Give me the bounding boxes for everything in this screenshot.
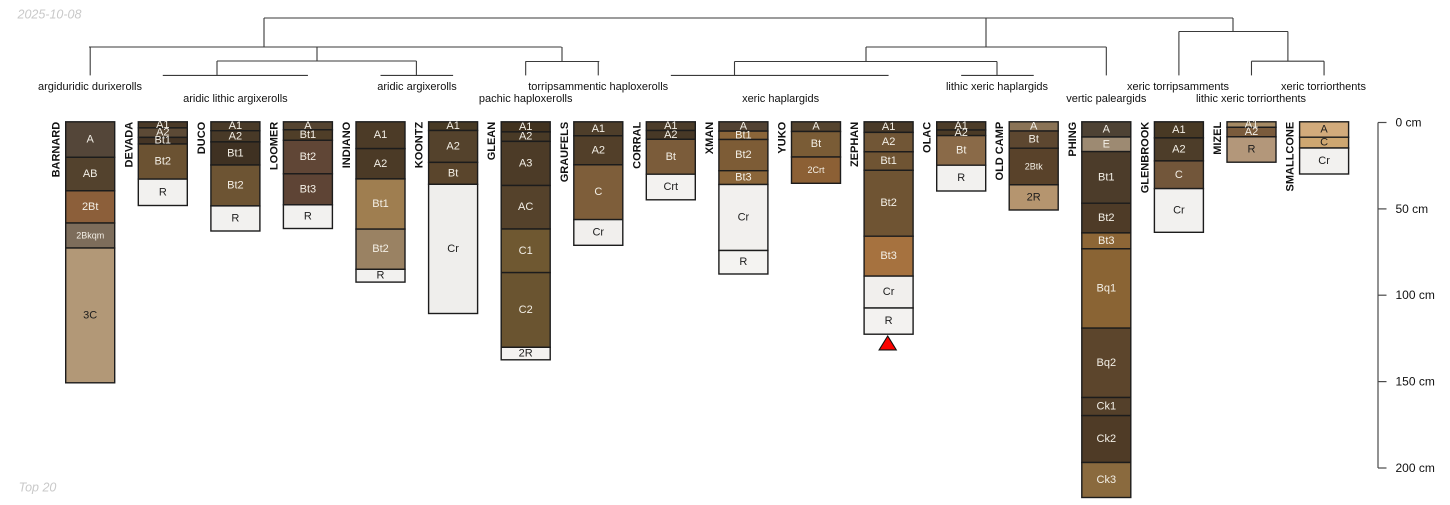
svg-text:xeric torripsamments: xeric torripsamments	[1127, 81, 1230, 93]
svg-text:Cr: Cr	[447, 243, 459, 255]
svg-text:A1: A1	[446, 120, 459, 132]
svg-text:A: A	[1103, 123, 1111, 135]
svg-text:A2: A2	[519, 131, 532, 143]
svg-text:2Btk: 2Btk	[1025, 162, 1044, 172]
svg-text:INDIANO: INDIANO	[341, 121, 353, 168]
svg-text:lithic xeric haplargids: lithic xeric haplargids	[946, 81, 1049, 93]
svg-text:Top 20: Top 20	[19, 481, 57, 495]
svg-text:A1: A1	[374, 129, 387, 141]
svg-text:AC: AC	[518, 201, 533, 213]
svg-text:pachic haploxerolls: pachic haploxerolls	[479, 93, 573, 105]
svg-text:150 cm: 150 cm	[1396, 375, 1435, 389]
svg-text:PHING: PHING	[1067, 122, 1079, 157]
svg-text:100 cm: 100 cm	[1396, 288, 1435, 302]
svg-text:Bt2: Bt2	[300, 151, 317, 163]
svg-text:Cr: Cr	[1318, 155, 1330, 167]
svg-text:200 cm: 200 cm	[1396, 461, 1435, 475]
svg-text:C: C	[594, 186, 602, 198]
svg-text:Bt3: Bt3	[1098, 235, 1115, 247]
svg-text:vertic paleargids: vertic paleargids	[1066, 93, 1147, 105]
svg-text:Bt: Bt	[956, 144, 966, 156]
svg-text:C: C	[1175, 169, 1183, 181]
svg-text:Bq1: Bq1	[1097, 283, 1117, 295]
svg-text:aridic lithic argixerolls: aridic lithic argixerolls	[183, 93, 288, 105]
svg-text:A2: A2	[374, 158, 387, 170]
svg-text:Ck1: Ck1	[1097, 401, 1117, 413]
svg-text:Bt1: Bt1	[227, 147, 244, 159]
svg-text:Bt1: Bt1	[300, 129, 317, 141]
svg-text:YUKO: YUKO	[777, 121, 789, 153]
svg-text:C1: C1	[519, 245, 533, 257]
svg-text:R: R	[231, 212, 239, 224]
svg-text:0 cm: 0 cm	[1396, 116, 1422, 130]
svg-text:A1: A1	[592, 123, 605, 135]
svg-text:AB: AB	[83, 168, 98, 180]
svg-text:A2: A2	[664, 129, 677, 141]
svg-text:DEVADA: DEVADA	[123, 122, 135, 168]
svg-text:CORRAL: CORRAL	[631, 122, 643, 169]
svg-text:Crt: Crt	[663, 181, 678, 193]
svg-text:Bt1: Bt1	[1098, 171, 1115, 183]
svg-text:Bt2: Bt2	[1098, 212, 1115, 224]
svg-text:SMALLCONE: SMALLCONE	[1285, 122, 1297, 192]
svg-text:KOONTZ: KOONTZ	[414, 122, 426, 169]
svg-text:xeric haplargids: xeric haplargids	[742, 93, 820, 105]
svg-text:C2: C2	[519, 304, 533, 316]
svg-text:Bt3: Bt3	[735, 172, 752, 184]
svg-text:Bt2: Bt2	[155, 156, 172, 168]
svg-text:E: E	[1103, 138, 1110, 150]
svg-text:lithic xeric torriorthents: lithic xeric torriorthents	[1196, 93, 1307, 105]
svg-text:A2: A2	[1245, 126, 1258, 138]
svg-text:Cr: Cr	[592, 226, 604, 238]
svg-text:R: R	[739, 256, 747, 268]
svg-text:Bt: Bt	[1028, 134, 1038, 146]
svg-text:Bt2: Bt2	[735, 149, 752, 161]
svg-text:3C: 3C	[83, 309, 97, 321]
svg-text:Bt1: Bt1	[372, 198, 389, 210]
svg-text:2025-10-08: 2025-10-08	[17, 7, 82, 21]
svg-text:Bt2: Bt2	[227, 179, 244, 191]
svg-text:A2: A2	[592, 144, 605, 156]
svg-text:A2: A2	[446, 140, 459, 152]
svg-text:2Bt: 2Bt	[82, 201, 99, 213]
svg-text:Bt2: Bt2	[880, 197, 897, 209]
svg-text:Bt1: Bt1	[155, 135, 172, 147]
svg-text:Bt: Bt	[448, 167, 458, 179]
svg-text:A: A	[1030, 120, 1038, 132]
svg-text:R: R	[304, 211, 312, 223]
svg-text:Ck3: Ck3	[1097, 474, 1117, 486]
svg-text:R: R	[159, 186, 167, 198]
svg-text:A2: A2	[1172, 143, 1185, 155]
svg-text:A2: A2	[882, 136, 895, 148]
svg-text:A: A	[87, 134, 95, 146]
svg-text:aridic argixerolls: aridic argixerolls	[377, 81, 457, 93]
svg-text:ZEPHAN: ZEPHAN	[849, 122, 861, 167]
svg-text:C: C	[1320, 137, 1328, 149]
svg-text:A1: A1	[1172, 124, 1185, 136]
svg-text:A: A	[812, 121, 820, 133]
svg-text:LOOMER: LOOMER	[268, 122, 280, 170]
svg-text:A2: A2	[229, 130, 242, 142]
svg-text:GRAUFELS: GRAUFELS	[559, 122, 571, 183]
svg-text:argiduridic durixerolls: argiduridic durixerolls	[38, 81, 142, 93]
svg-text:A3: A3	[519, 157, 532, 169]
svg-text:Bt3: Bt3	[300, 183, 317, 195]
svg-text:MIZEL: MIZEL	[1212, 122, 1224, 155]
svg-text:GLEAN: GLEAN	[486, 122, 498, 161]
svg-text:Bt: Bt	[666, 151, 676, 163]
svg-text:50 cm: 50 cm	[1396, 202, 1429, 216]
svg-text:Cr: Cr	[1173, 204, 1185, 216]
svg-text:torripsammentic haploxerolls: torripsammentic haploxerolls	[528, 81, 668, 93]
svg-text:Bt2: Bt2	[372, 243, 389, 255]
svg-text:XMAN: XMAN	[704, 122, 716, 154]
svg-text:Bt1: Bt1	[735, 129, 752, 141]
svg-text:GLENBROOK: GLENBROOK	[1139, 122, 1151, 194]
svg-text:2Bkqm: 2Bkqm	[76, 231, 104, 241]
svg-text:xeric torriorthents: xeric torriorthents	[1281, 81, 1366, 93]
svg-text:2Crt: 2Crt	[807, 165, 825, 175]
svg-text:R: R	[1248, 144, 1256, 156]
svg-text:A2: A2	[954, 127, 967, 139]
svg-text:Bt1: Bt1	[880, 155, 897, 167]
svg-text:A1: A1	[882, 121, 895, 133]
svg-text:2R: 2R	[519, 348, 533, 360]
svg-text:Ck2: Ck2	[1097, 433, 1117, 445]
svg-text:Bt: Bt	[811, 138, 821, 150]
svg-text:Bq2: Bq2	[1097, 357, 1117, 369]
svg-text:R: R	[957, 172, 965, 184]
svg-text:R: R	[885, 315, 893, 327]
svg-text:DUCO: DUCO	[196, 121, 208, 154]
svg-text:2R: 2R	[1027, 191, 1041, 203]
svg-text:Cr: Cr	[738, 212, 750, 224]
svg-text:Cr: Cr	[883, 286, 895, 298]
svg-text:Bt3: Bt3	[880, 250, 897, 262]
svg-text:BARNARD: BARNARD	[51, 122, 63, 178]
svg-text:R: R	[377, 270, 385, 282]
svg-text:OLD CAMP: OLD CAMP	[994, 122, 1006, 181]
svg-text:A: A	[1320, 124, 1328, 136]
svg-text:OLAC: OLAC	[922, 122, 934, 153]
